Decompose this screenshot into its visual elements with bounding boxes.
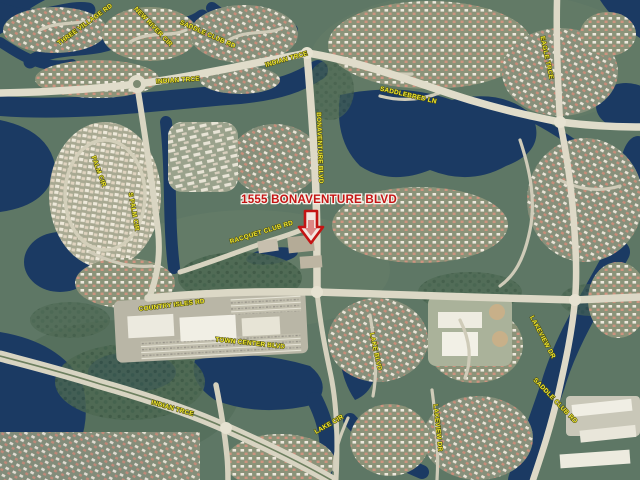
- address-annotation-text: 1555 BONAVENTURE BLVD: [241, 193, 397, 206]
- aerial-map-image: INDIAN TRCEINDIAN TRCENEW RIVER CIRTHREE…: [0, 0, 640, 480]
- condo-buildings: [560, 396, 640, 468]
- shopping-plaza: [113, 291, 308, 363]
- aerial-map-screenshot: INDIAN TRCEINDIAN TRCENEW RIVER CIRTHREE…: [0, 0, 640, 480]
